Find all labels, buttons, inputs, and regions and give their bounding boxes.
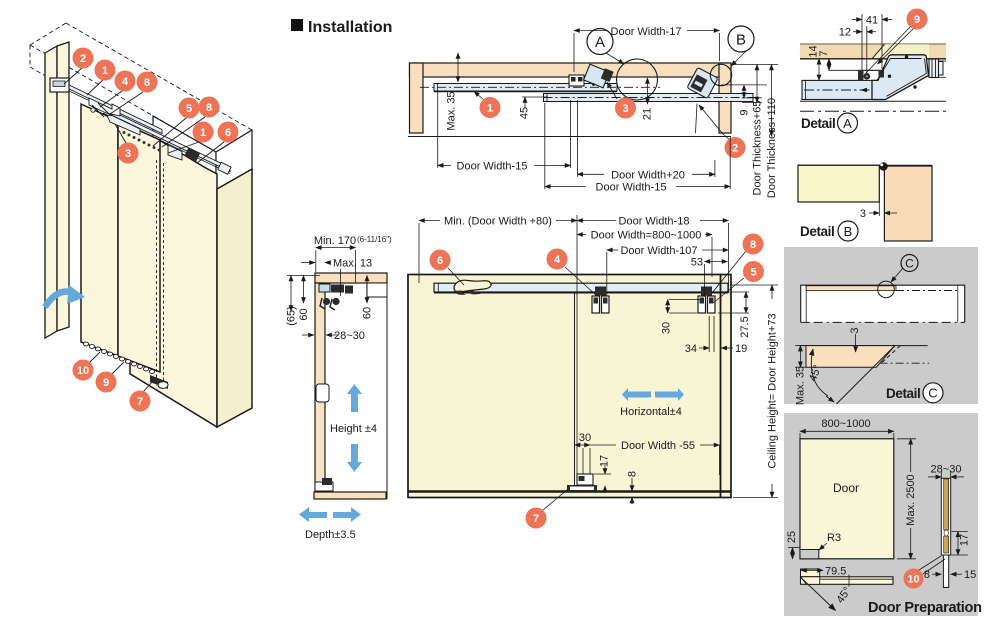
svg-text:A: A — [843, 116, 852, 131]
svg-text:Max. 2500: Max. 2500 — [905, 474, 917, 525]
svg-text:8: 8 — [144, 77, 150, 89]
svg-text:7: 7 — [533, 513, 539, 525]
svg-text:25: 25 — [786, 531, 798, 543]
svg-text:4: 4 — [122, 76, 129, 88]
svg-text:Max. 13: Max. 13 — [333, 258, 372, 270]
svg-text:(6-11/16"): (6-11/16") — [357, 235, 392, 244]
svg-text:27.5: 27.5 — [739, 316, 751, 337]
svg-text:2: 2 — [732, 143, 738, 155]
svg-text:Max. 35: Max. 35 — [795, 366, 807, 405]
svg-text:1: 1 — [102, 65, 108, 77]
svg-text:6: 6 — [225, 127, 231, 139]
svg-text:Ceiling Height= Door Height+73: Ceiling Height= Door Height+73 — [767, 313, 779, 468]
svg-text:34: 34 — [685, 343, 697, 355]
svg-text:5: 5 — [186, 103, 192, 115]
svg-text:C: C — [905, 257, 914, 271]
svg-text:28~30: 28~30 — [334, 330, 365, 342]
svg-text:3: 3 — [860, 208, 866, 220]
svg-text:7: 7 — [137, 396, 143, 408]
svg-text:Installation: Installation — [308, 19, 392, 36]
svg-text:5: 5 — [750, 267, 756, 279]
svg-text:Door Thickness+65: Door Thickness+65 — [752, 101, 764, 196]
svg-text:Door Width-15: Door Width-15 — [596, 182, 667, 194]
svg-text:Min. (Door Width +80): Min. (Door Width +80) — [444, 216, 552, 228]
svg-text:8: 8 — [627, 471, 639, 477]
svg-text:Detail: Detail — [886, 386, 920, 401]
svg-text:7: 7 — [818, 50, 830, 56]
svg-text:9: 9 — [103, 377, 109, 389]
svg-text:3: 3 — [622, 103, 628, 115]
svg-text:Max. 35: Max. 35 — [446, 91, 458, 130]
svg-text:30: 30 — [579, 432, 591, 444]
svg-text:12: 12 — [839, 27, 851, 39]
svg-text:Door Width+20: Door Width+20 — [611, 169, 685, 181]
svg-text:Door Width=800~1000: Door Width=800~1000 — [591, 230, 702, 242]
svg-text:9: 9 — [739, 109, 751, 115]
svg-text:3: 3 — [125, 148, 131, 160]
svg-text:15: 15 — [964, 569, 976, 581]
svg-text:79.5: 79.5 — [825, 565, 846, 577]
svg-text:6: 6 — [437, 255, 443, 267]
svg-text:Min. 170: Min. 170 — [314, 235, 356, 247]
svg-text:C: C — [928, 385, 937, 400]
svg-text:800~1000: 800~1000 — [821, 418, 870, 430]
svg-text:Horizontal±4: Horizontal±4 — [620, 406, 682, 418]
svg-text:Door Width-15: Door Width-15 — [457, 160, 528, 172]
svg-text:17: 17 — [599, 455, 611, 467]
svg-text:60: 60 — [362, 307, 374, 319]
svg-text:1: 1 — [200, 127, 206, 139]
svg-text:10: 10 — [907, 574, 919, 586]
svg-text:Door Width-107: Door Width-107 — [620, 245, 697, 257]
svg-text:30: 30 — [661, 322, 673, 334]
svg-text:8: 8 — [924, 569, 930, 581]
svg-text:Depth±3.5: Depth±3.5 — [305, 529, 356, 541]
svg-text:8: 8 — [750, 239, 756, 251]
svg-text:(65): (65) — [286, 306, 298, 326]
svg-text:53: 53 — [691, 257, 703, 269]
svg-text:Height ±4: Height ±4 — [330, 423, 377, 435]
svg-text:Detail: Detail — [801, 116, 835, 131]
svg-text:Door Thickness+110: Door Thickness+110 — [766, 98, 778, 198]
svg-text:4: 4 — [554, 254, 561, 266]
svg-text:Door Width -55: Door Width -55 — [621, 440, 695, 452]
svg-text:B: B — [736, 32, 746, 49]
svg-text:B: B — [844, 224, 853, 239]
svg-text:Door Width-17: Door Width-17 — [611, 26, 682, 38]
svg-text:A: A — [595, 34, 605, 51]
svg-text:41: 41 — [866, 15, 878, 27]
svg-text:28~30: 28~30 — [931, 463, 962, 475]
svg-text:1: 1 — [487, 103, 493, 115]
svg-text:60: 60 — [298, 308, 310, 320]
svg-text:Detail: Detail — [800, 224, 834, 239]
svg-text:17: 17 — [959, 534, 971, 546]
svg-text:9: 9 — [914, 14, 920, 26]
svg-text:10: 10 — [77, 365, 89, 377]
svg-text:Door Preparation: Door Preparation — [868, 600, 982, 616]
svg-text:3: 3 — [849, 327, 861, 333]
svg-text:R3: R3 — [827, 532, 841, 544]
svg-text:2: 2 — [80, 53, 86, 65]
svg-text:Door: Door — [833, 481, 859, 495]
svg-text:Door Width-18: Door Width-18 — [619, 216, 690, 228]
svg-text:21: 21 — [642, 108, 654, 120]
svg-text:45: 45 — [519, 107, 531, 119]
svg-text:8: 8 — [206, 102, 212, 114]
svg-text:19: 19 — [735, 343, 747, 355]
